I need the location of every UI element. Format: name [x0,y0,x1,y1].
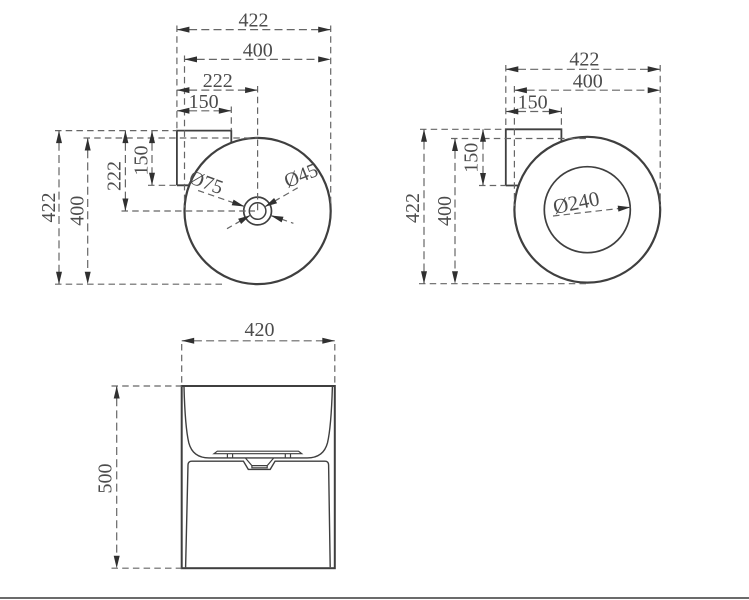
svg-text:222: 222 [104,161,126,191]
svg-text:150: 150 [518,92,548,114]
svg-text:Ø75: Ø75 [186,167,226,199]
svg-text:400: 400 [434,196,456,226]
svg-text:422: 422 [402,193,424,223]
svg-text:422: 422 [38,193,60,223]
svg-text:500: 500 [95,464,117,494]
svg-text:420: 420 [245,319,275,341]
svg-text:150: 150 [189,91,219,113]
svg-text:400: 400 [573,71,603,93]
svg-text:Ø45: Ø45 [281,159,321,192]
svg-text:Ø240: Ø240 [551,186,601,218]
svg-text:422: 422 [569,49,599,71]
svg-text:400: 400 [243,39,273,61]
svg-text:150: 150 [461,143,483,173]
svg-text:400: 400 [66,196,88,226]
svg-text:422: 422 [239,10,269,32]
svg-text:150: 150 [131,146,153,176]
svg-text:222: 222 [203,70,233,92]
